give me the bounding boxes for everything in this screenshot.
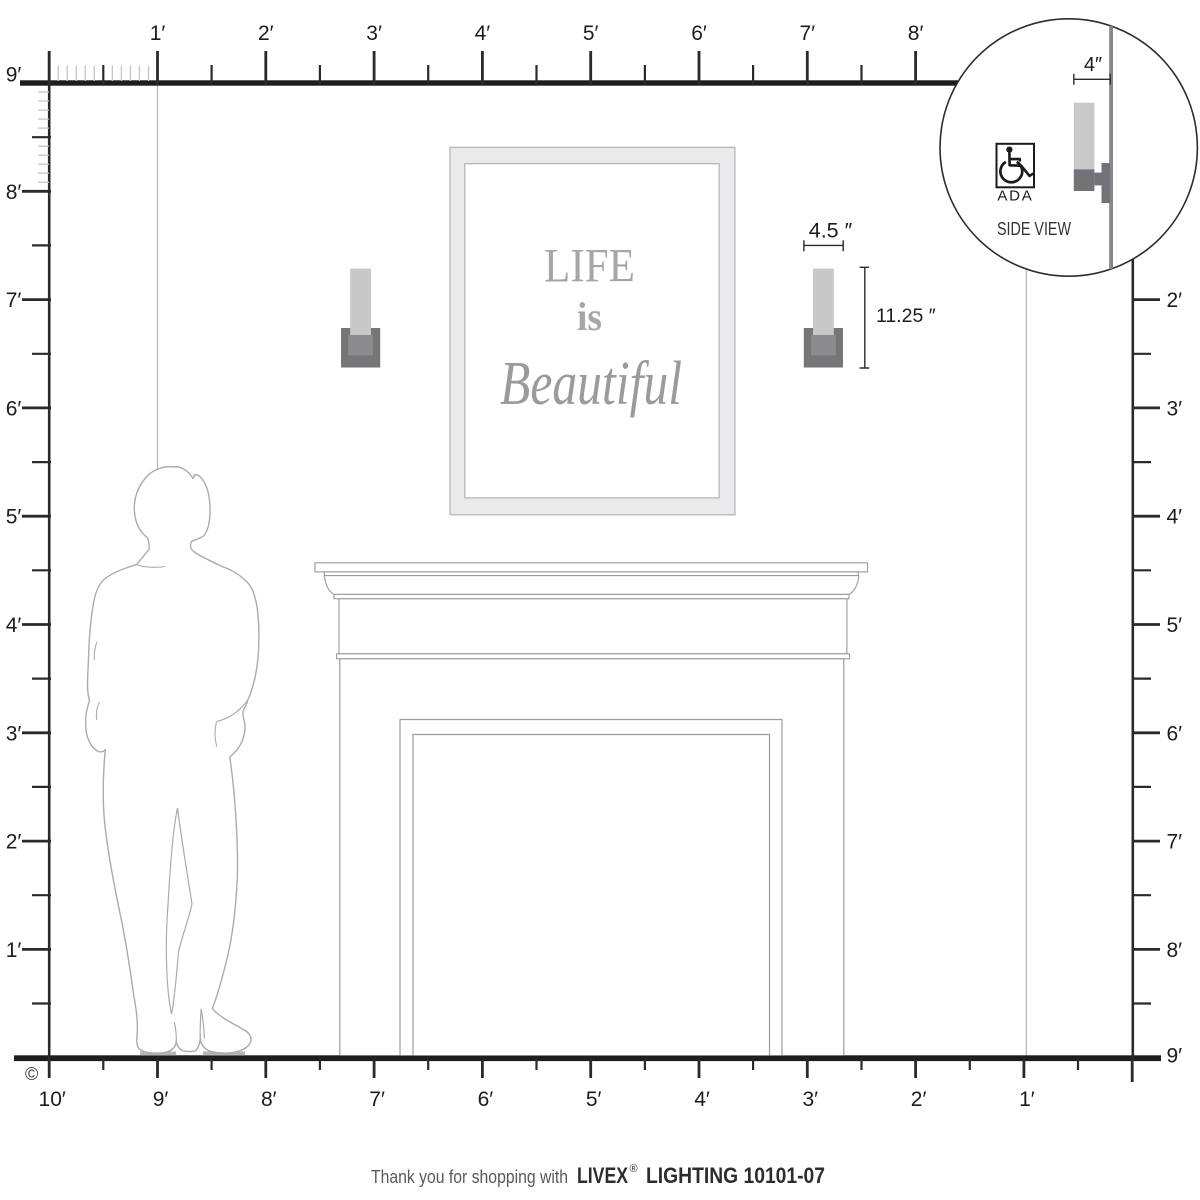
svg-text:4′: 4′ bbox=[6, 614, 22, 637]
svg-text:9′: 9′ bbox=[153, 1088, 169, 1111]
svg-text:Thank you for shopping with: Thank you for shopping with bbox=[371, 1167, 568, 1187]
svg-text:7′: 7′ bbox=[6, 289, 22, 312]
svg-text:2′: 2′ bbox=[6, 831, 22, 854]
svg-text:8′: 8′ bbox=[261, 1088, 277, 1111]
svg-text:1′: 1′ bbox=[6, 939, 22, 962]
svg-text:7′: 7′ bbox=[1167, 831, 1183, 854]
svg-text:8′: 8′ bbox=[6, 181, 22, 204]
svg-text:2′: 2′ bbox=[911, 1088, 927, 1111]
svg-text:LIGHTING 10101-07: LIGHTING 10101-07 bbox=[646, 1163, 825, 1188]
svg-text:SIDE VIEW: SIDE VIEW bbox=[997, 219, 1071, 239]
svg-text:®: ® bbox=[630, 1163, 638, 1175]
svg-text:6′: 6′ bbox=[6, 397, 22, 420]
svg-text:3′: 3′ bbox=[1167, 397, 1183, 420]
svg-text:2′: 2′ bbox=[258, 22, 274, 45]
svg-text:5′: 5′ bbox=[1167, 614, 1183, 637]
svg-text:3′: 3′ bbox=[6, 722, 22, 745]
svg-text:8′: 8′ bbox=[908, 22, 924, 45]
svg-text:8′: 8′ bbox=[1167, 939, 1183, 962]
svg-text:4″: 4″ bbox=[1084, 54, 1102, 76]
svg-text:7′: 7′ bbox=[799, 22, 815, 45]
svg-text:7′: 7′ bbox=[369, 1088, 385, 1111]
svg-text:5′: 5′ bbox=[583, 22, 599, 45]
svg-text:4.5 ″: 4.5 ″ bbox=[809, 219, 853, 243]
svg-text:3′: 3′ bbox=[366, 22, 382, 45]
svg-text:1′: 1′ bbox=[150, 22, 166, 45]
svg-text:6′: 6′ bbox=[1167, 722, 1183, 745]
svg-text:2′: 2′ bbox=[1167, 289, 1183, 312]
svg-text:5′: 5′ bbox=[586, 1088, 602, 1111]
svg-text:9′: 9′ bbox=[1167, 1045, 1183, 1068]
svg-text:©: © bbox=[25, 1064, 38, 1084]
svg-text:Beautiful: Beautiful bbox=[500, 350, 682, 418]
svg-text:5′: 5′ bbox=[6, 506, 22, 529]
svg-text:9′: 9′ bbox=[6, 64, 22, 87]
svg-text:LIVEX: LIVEX bbox=[577, 1163, 628, 1188]
svg-text:4′: 4′ bbox=[475, 22, 491, 45]
svg-text:1′: 1′ bbox=[1019, 1088, 1035, 1111]
svg-text:is: is bbox=[577, 294, 602, 339]
svg-text:3′: 3′ bbox=[802, 1088, 818, 1111]
svg-text:6′: 6′ bbox=[478, 1088, 494, 1111]
svg-text:11.25 ″: 11.25 ″ bbox=[876, 305, 936, 327]
svg-text:10′: 10′ bbox=[39, 1088, 66, 1111]
svg-text:LIFE: LIFE bbox=[544, 240, 635, 293]
svg-text:4′: 4′ bbox=[1167, 506, 1183, 529]
svg-text:4′: 4′ bbox=[694, 1088, 710, 1111]
svg-text:ADA: ADA bbox=[997, 188, 1033, 205]
svg-text:6′: 6′ bbox=[691, 22, 707, 45]
